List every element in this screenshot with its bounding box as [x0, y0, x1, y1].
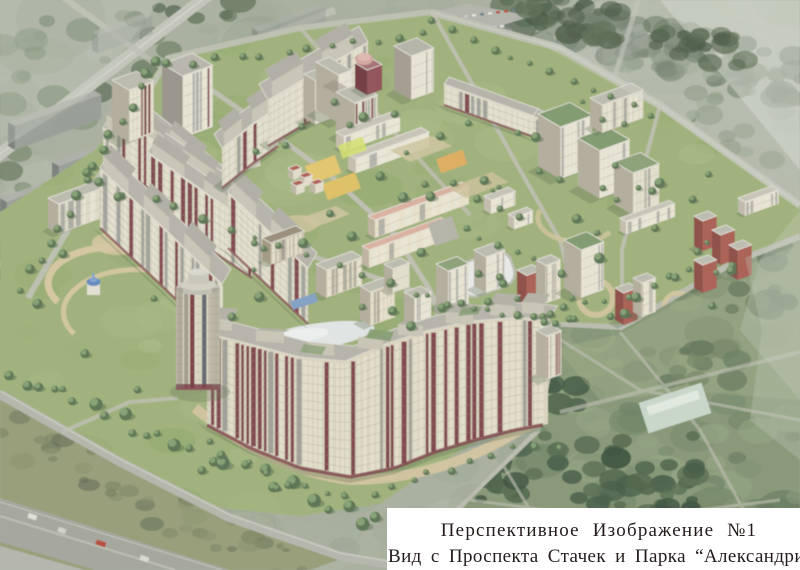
svg-text:Перспективное Изображение №1: Перспективное Изображение №1	[441, 520, 757, 541]
svg-text:Вид с Проспекта Стачек и Парка: Вид с Проспекта Стачек и Парка “Александ…	[388, 546, 800, 567]
